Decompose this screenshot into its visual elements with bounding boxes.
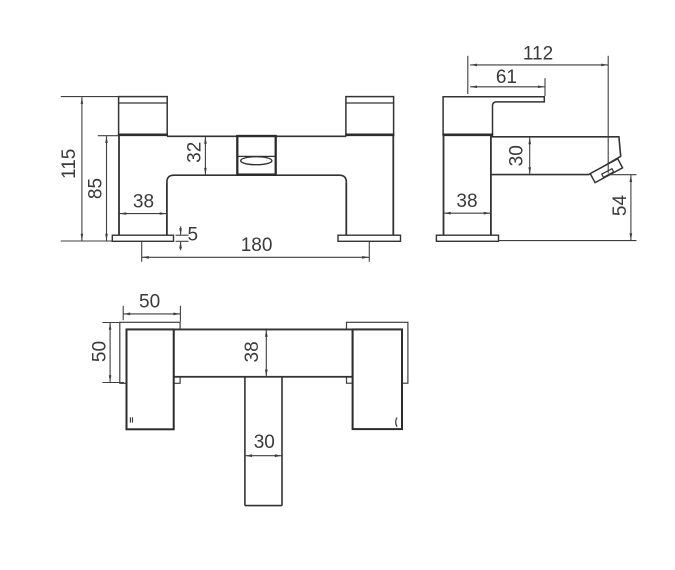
svg-text:32: 32 [185, 142, 206, 163]
svg-text:38: 38 [242, 341, 263, 362]
svg-text:50: 50 [139, 292, 160, 313]
svg-text:54: 54 [610, 195, 631, 217]
svg-text:30: 30 [507, 145, 528, 166]
svg-text:50: 50 [89, 341, 110, 362]
svg-text:38: 38 [133, 192, 154, 213]
svg-text:30: 30 [254, 432, 275, 453]
svg-text:115: 115 [59, 149, 80, 179]
svg-text:85: 85 [86, 178, 107, 199]
svg-text:112: 112 [523, 44, 553, 65]
svg-text:61: 61 [496, 67, 517, 88]
svg-text:180: 180 [241, 235, 273, 256]
svg-text:38: 38 [456, 191, 477, 212]
svg-text:5: 5 [188, 225, 199, 246]
